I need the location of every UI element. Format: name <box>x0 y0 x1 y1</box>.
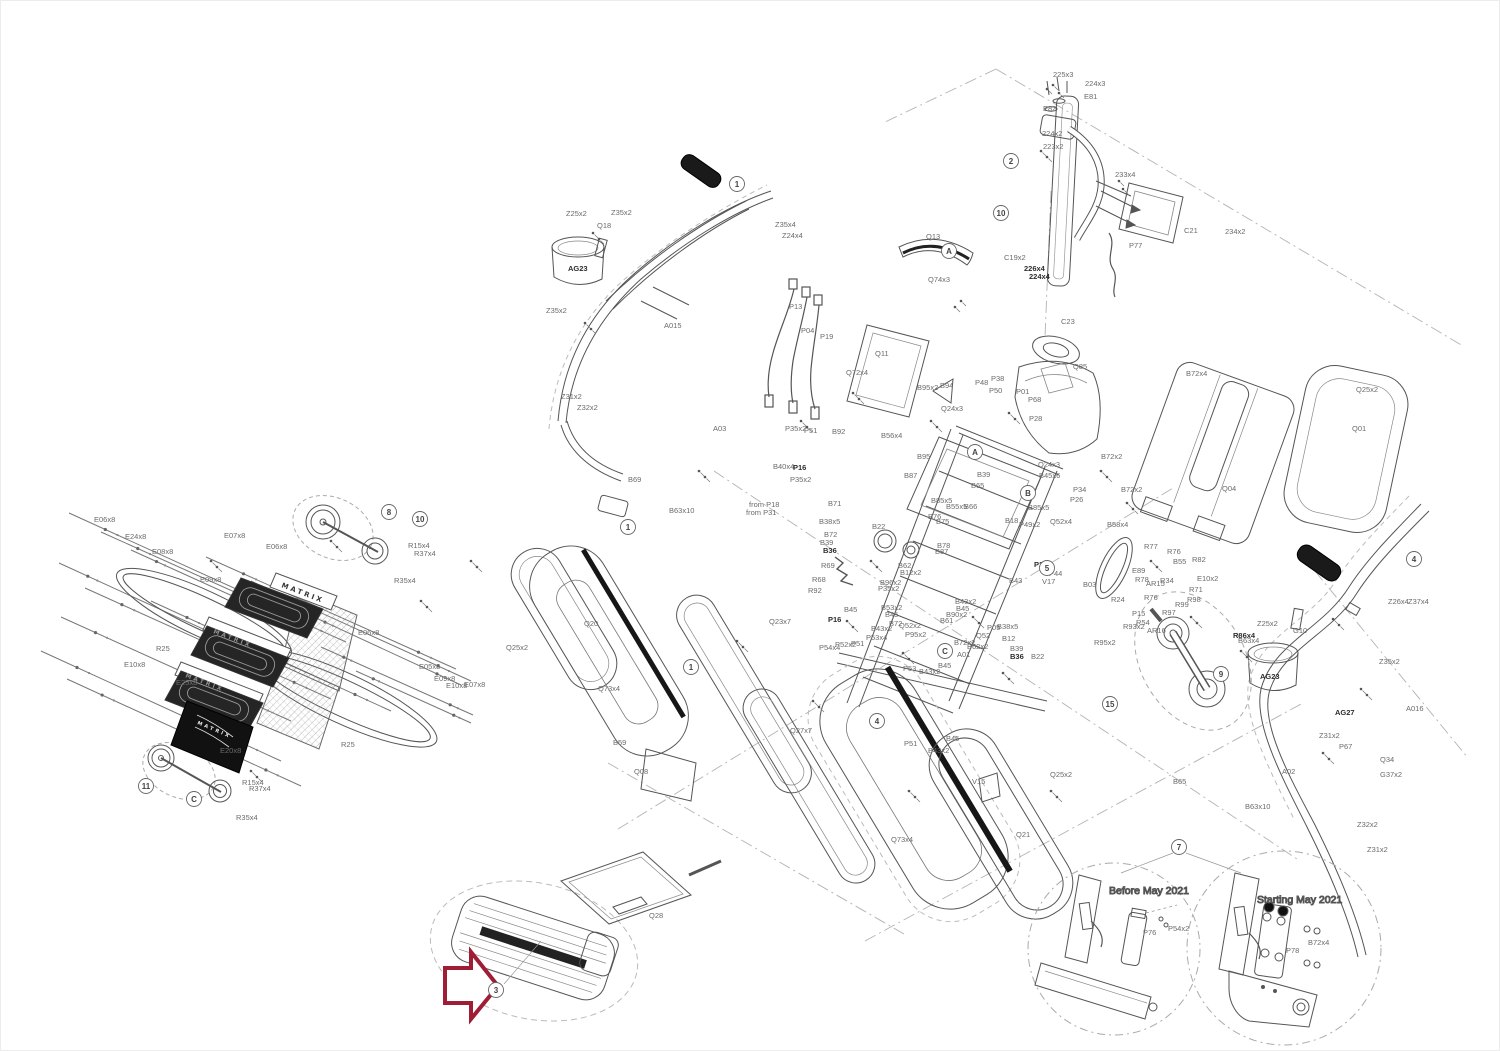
part-label: A015 <box>664 321 682 330</box>
part-label: R71 <box>1189 585 1203 594</box>
part-label: Q74x3 <box>928 275 950 284</box>
part-label: R69 <box>821 561 835 570</box>
tray-q28 <box>561 852 721 924</box>
part-label: Q25x2 <box>1050 770 1072 779</box>
part-label: A01 <box>957 650 970 659</box>
rail-q23x7 <box>669 588 819 801</box>
part-label: R97 <box>1162 608 1176 617</box>
balloon-callout: 4 <box>1407 552 1422 567</box>
part-label: R92 <box>808 586 822 595</box>
part-label: P95x2 <box>905 630 926 639</box>
part-label: B45 <box>956 604 969 613</box>
part-label: R76 <box>1144 593 1158 602</box>
part-label: Q23x7 <box>769 617 791 626</box>
part-label: B12x2 <box>900 568 921 577</box>
part-label: E05x8 <box>419 662 440 671</box>
part-label: P35x2 <box>790 475 811 484</box>
part-label: 225x3 <box>1053 70 1073 79</box>
part-label: 233x4 <box>1115 170 1135 179</box>
part-label: Q04 <box>1222 484 1236 493</box>
part-label: B22 <box>1031 652 1044 661</box>
svg-text:3: 3 <box>494 986 499 995</box>
part-label: E06x8 <box>266 542 287 551</box>
part-label: B36 <box>1010 652 1024 661</box>
part-label: R34 <box>1160 576 1174 585</box>
part-label: Q11 <box>875 349 889 358</box>
part-label: B43x2 <box>928 746 949 755</box>
part-label: R68 <box>812 575 826 584</box>
part-label: 224x2 <box>1042 129 1062 138</box>
part-label: P49x2 <box>1019 520 1040 529</box>
balloon-callout: 5 <box>1040 561 1055 576</box>
part-label: Q25x2 <box>506 643 528 652</box>
part-label: B72x2 <box>1121 485 1142 494</box>
part-label: P04 <box>801 326 814 335</box>
screws-layer <box>210 84 1372 802</box>
detail-view-title-before: Before May 2021 <box>1109 885 1189 897</box>
part-label: P16 <box>828 615 841 624</box>
part-label: P77 <box>1129 241 1142 250</box>
bracket-q08 <box>641 749 696 801</box>
balloon-callout: 1 <box>684 660 699 675</box>
part-label: R24 <box>1111 595 1125 604</box>
part-label: B65 <box>971 481 984 490</box>
part-label: P34 <box>1073 485 1086 494</box>
svg-text:11: 11 <box>142 782 151 791</box>
part-label: R99 <box>1175 600 1189 609</box>
part-label: E07x8 <box>464 680 485 689</box>
part-label: B72x4 <box>1308 938 1329 947</box>
part-label: B72x4 <box>1186 369 1207 378</box>
part-label: 234x2 <box>1225 227 1245 236</box>
part-label: B95 <box>917 452 930 461</box>
mast-covers-q04 <box>1127 358 1298 549</box>
part-label: P68 <box>1028 395 1041 404</box>
part-label: P54x4 <box>819 643 840 652</box>
part-label: E07x8 <box>224 531 245 540</box>
part-label: P67 <box>1339 742 1352 751</box>
part-label: E24x8 <box>125 532 146 541</box>
mast-assembly <box>1040 77 1183 297</box>
hr-grip-right <box>1294 542 1344 584</box>
part-label: P53 <box>903 664 916 673</box>
rail-q27x7 <box>736 682 882 890</box>
part-label: P50 <box>989 386 1002 395</box>
drive-axle-assembly-top <box>282 483 388 573</box>
part-label: B72x2 <box>1101 452 1122 461</box>
part-label: B45x6 <box>1039 471 1060 480</box>
part-label: from P31 <box>746 508 776 517</box>
tablet-holder <box>1119 183 1183 243</box>
part-label: C19x2 <box>1004 253 1026 262</box>
part-label: B63x4 <box>1238 636 1259 645</box>
part-label: B03 <box>1083 580 1096 589</box>
part-label: P19 <box>820 332 833 341</box>
part-label: B12 <box>1002 634 1015 643</box>
covers-center <box>736 637 1085 941</box>
part-label: Q52 <box>976 631 990 640</box>
part-label: R35x4 <box>236 813 258 822</box>
balloon-callout: A <box>942 244 957 259</box>
part-label: B63x10 <box>1245 802 1270 811</box>
part-label: Z35x4 <box>775 220 796 229</box>
part-label: B45 <box>885 610 898 619</box>
part-label: Z31x2 <box>561 392 582 401</box>
balloons-layer: 1210AAB5C114491581011C73 <box>139 154 1422 998</box>
balloon-callout: 10 <box>413 512 428 527</box>
part-label: B40x4 <box>773 462 794 471</box>
part-label: B75 <box>936 517 949 526</box>
svg-text:C: C <box>942 647 948 656</box>
part-label: Z37x4 <box>1408 597 1429 606</box>
stairs-assembly <box>41 483 473 811</box>
svg-text:1: 1 <box>689 663 694 672</box>
part-label: G10 <box>1293 626 1307 635</box>
balloon-callout: 11 <box>139 779 154 794</box>
balloon-callout: C <box>187 792 202 807</box>
svg-text:10: 10 <box>416 515 425 524</box>
part-label: B92 <box>832 427 845 436</box>
part-label: 223x2 <box>1043 142 1063 151</box>
part-label: Q73x4 <box>598 684 620 693</box>
part-label: Z24x4 <box>782 231 803 240</box>
part-label: AG23 <box>568 264 588 273</box>
part-label: B38x5 <box>819 517 840 526</box>
part-label: B43 <box>1009 576 1022 585</box>
part-label: E10x8 <box>124 660 145 669</box>
part-label: P16 <box>793 463 806 472</box>
part-label: R25 <box>341 740 355 749</box>
part-label: A02 <box>1282 767 1295 776</box>
part-label: Z25x2 <box>1257 619 1278 628</box>
part-label: B85x5 <box>1028 503 1049 512</box>
balloon-callout: 15 <box>1103 697 1118 712</box>
diagram-canvas: Before May 2021 Starting May 2021 MATRIX… <box>0 0 1500 1051</box>
part-label: B95x2 <box>917 383 938 392</box>
part-label: B56x4 <box>881 431 902 440</box>
part-label: R25 <box>156 644 170 653</box>
part-label: R93x2 <box>1123 622 1145 631</box>
part-label: B65 <box>1173 777 1186 786</box>
cover-dark-edge <box>515 532 702 770</box>
part-label: B45 <box>844 605 857 614</box>
detail-view-title-starting: Starting May 2021 <box>1257 894 1342 906</box>
part-label: R37x4 <box>249 784 271 793</box>
part-label: E25x8 <box>176 678 197 687</box>
part-label: G37x2 <box>1380 770 1402 779</box>
part-label: 224x4 <box>1029 272 1051 281</box>
part-label: Z26x4 <box>1388 597 1409 606</box>
part-label: C23 <box>1061 317 1075 326</box>
part-label: R76 <box>1167 547 1181 556</box>
part-label: B22 <box>872 522 885 531</box>
part-label: B55 <box>1173 557 1186 566</box>
part-label: 224x3 <box>1085 79 1105 88</box>
part-label: R77 <box>1144 542 1158 551</box>
part-label: AG23 <box>1260 672 1280 681</box>
part-label: E10x2 <box>1197 574 1218 583</box>
part-label: R82 <box>1192 555 1206 564</box>
part-label: E89 <box>1132 566 1145 575</box>
detail-view-starting: Starting May 2021 <box>1187 851 1381 1045</box>
svg-text:B: B <box>1025 489 1031 498</box>
part-label: B63x10 <box>669 506 694 515</box>
cup-holder-left <box>552 237 604 285</box>
svg-text:C: C <box>191 795 197 804</box>
part-label: E81 <box>1084 92 1097 101</box>
part-label: B36 <box>823 546 837 555</box>
part-label: P48 <box>975 378 988 387</box>
balloon-callout: 2 <box>1004 154 1019 169</box>
part-label: E06x8 <box>94 515 115 524</box>
part-label: R37x4 <box>414 549 436 558</box>
idler-pulley <box>874 530 896 552</box>
part-label: Z35x2 <box>611 208 632 217</box>
exploded-view-svg: Before May 2021 Starting May 2021 MATRIX… <box>1 1 1500 1051</box>
part-label: E82 <box>1043 104 1056 113</box>
svg-text:1: 1 <box>735 180 740 189</box>
part-label: Q73x4 <box>891 835 913 844</box>
part-label: Z35x2 <box>546 306 567 315</box>
part-label: P53x4 <box>866 633 887 642</box>
part-label: V15 <box>972 777 985 786</box>
part-label: R95x2 <box>1094 638 1116 647</box>
balloon-callout: B <box>1021 486 1036 501</box>
part-label: B45 <box>938 661 951 670</box>
balloon-callout: A <box>968 445 983 460</box>
part-label: A03 <box>713 424 726 433</box>
part-label: B66 <box>964 502 977 511</box>
detail-view-before: Before May 2021 <box>1028 863 1200 1035</box>
balloon-callout: 7 <box>1172 840 1187 855</box>
balloon-callout: 3 <box>489 983 504 998</box>
balloon-callout: 9 <box>1214 667 1229 682</box>
svg-text:A: A <box>972 448 978 457</box>
part-label: Z25x2 <box>566 209 587 218</box>
part-label: B87 <box>935 547 948 556</box>
part-label: P51 <box>851 639 864 648</box>
part-label: E09x8 <box>200 575 221 584</box>
part-label: B71 <box>828 499 841 508</box>
balloon-callout: 4 <box>870 714 885 729</box>
part-label: B69 <box>628 475 641 484</box>
part-label: A016 <box>1406 704 1424 713</box>
part-label: B58x4 <box>1107 520 1128 529</box>
svg-text:2: 2 <box>1009 157 1014 166</box>
svg-text:15: 15 <box>1106 700 1115 709</box>
part-label: E06x8 <box>358 628 379 637</box>
part-label: Q24x3 <box>941 404 963 413</box>
part-label: Q20 <box>584 619 598 628</box>
part-label: Z32x2 <box>577 403 598 412</box>
svg-text:10: 10 <box>997 209 1006 218</box>
part-label: B18 <box>1005 516 1018 525</box>
part-label: R35x4 <box>394 576 416 585</box>
part-label: Z35x2 <box>1379 657 1400 666</box>
part-label: Q34 <box>1380 755 1394 764</box>
part-label: Z31x2 <box>1319 731 1340 740</box>
console-back-cover <box>1015 361 1100 453</box>
cup-holder-right <box>1248 643 1298 691</box>
part-label: Q28 <box>649 911 663 920</box>
part-label: P15 <box>1132 609 1145 618</box>
part-label: Q21 <box>1016 830 1030 839</box>
part-label: B45 <box>946 734 959 743</box>
svg-text:4: 4 <box>1412 555 1417 564</box>
part-label: B39 <box>977 470 990 479</box>
svg-text:8: 8 <box>387 508 392 517</box>
part-label: Z31x2 <box>1367 845 1388 854</box>
console-assembly <box>765 239 1100 453</box>
svg-text:4: 4 <box>875 717 880 726</box>
part-label: Q52x2 <box>899 621 921 630</box>
part-label: C21 <box>1184 226 1198 235</box>
part-label: Q72x4 <box>846 368 868 377</box>
part-label: Q24x3 <box>1038 460 1060 469</box>
svg-text:7: 7 <box>1177 843 1182 852</box>
part-label: P26 <box>1070 495 1083 504</box>
handlebar-right <box>1248 496 1429 957</box>
part-label: P78 <box>1286 946 1299 955</box>
part-label: P76 <box>1143 928 1156 937</box>
hr-grip-left <box>678 152 723 190</box>
svg-text:A: A <box>946 247 952 256</box>
balloon-callout: 8 <box>382 505 397 520</box>
small-motor-bracket <box>597 495 628 518</box>
part-label: B85x5 <box>931 496 952 505</box>
part-label: B87 <box>904 471 917 480</box>
part-label: Q52x4 <box>1050 517 1072 526</box>
part-label: B59 <box>613 738 626 747</box>
part-label: Q25x2 <box>1356 385 1378 394</box>
part-label: Q85 <box>1073 362 1087 371</box>
part-label: E08x8 <box>152 547 173 556</box>
part-label: P38 <box>991 374 1004 383</box>
part-label: E20x8 <box>220 746 241 755</box>
part-label: P35x2 <box>785 424 806 433</box>
part-label: Q27x7 <box>790 726 812 735</box>
balloon-callout: 1 <box>621 520 636 535</box>
balloon-callout: 1 <box>730 177 745 192</box>
part-label: V17 <box>1042 577 1055 586</box>
part-label: B38x5 <box>997 622 1018 631</box>
part-label: Z32x2 <box>1357 820 1378 829</box>
console-lens-strip <box>899 239 973 265</box>
part-label: P51 <box>904 739 917 748</box>
part-label: Q13 <box>926 232 940 241</box>
part-label: Q18 <box>597 221 611 230</box>
part-label: AR16 <box>1147 626 1166 635</box>
part-label: Q01 <box>1352 424 1366 433</box>
base-assembly <box>417 852 721 1039</box>
console-wires <box>765 279 822 419</box>
balloon-callout: 10 <box>994 206 1009 221</box>
part-label: R98 <box>1187 595 1201 604</box>
svg-text:1: 1 <box>626 523 631 532</box>
part-label: P13 <box>789 302 802 311</box>
svg-text:5: 5 <box>1045 564 1050 573</box>
part-label: Q08 <box>634 767 648 776</box>
svg-text:9: 9 <box>1219 670 1224 679</box>
part-label: B61 <box>940 616 953 625</box>
back-cover-q01 <box>1279 360 1414 538</box>
part-label: P35x2 <box>878 584 899 593</box>
mast-wire <box>1109 233 1115 297</box>
part-label: B94 <box>940 381 953 390</box>
detail-views: Before May 2021 Starting May 2021 <box>1028 851 1381 1045</box>
balloon-callout: C <box>938 644 953 659</box>
covers-left <box>502 495 819 801</box>
handlebar-left <box>549 152 773 481</box>
part-label: P54x2 <box>1168 924 1189 933</box>
part-label: AG27 <box>1335 708 1355 717</box>
cover-q20 <box>502 539 627 700</box>
part-label: P28 <box>1029 414 1042 423</box>
